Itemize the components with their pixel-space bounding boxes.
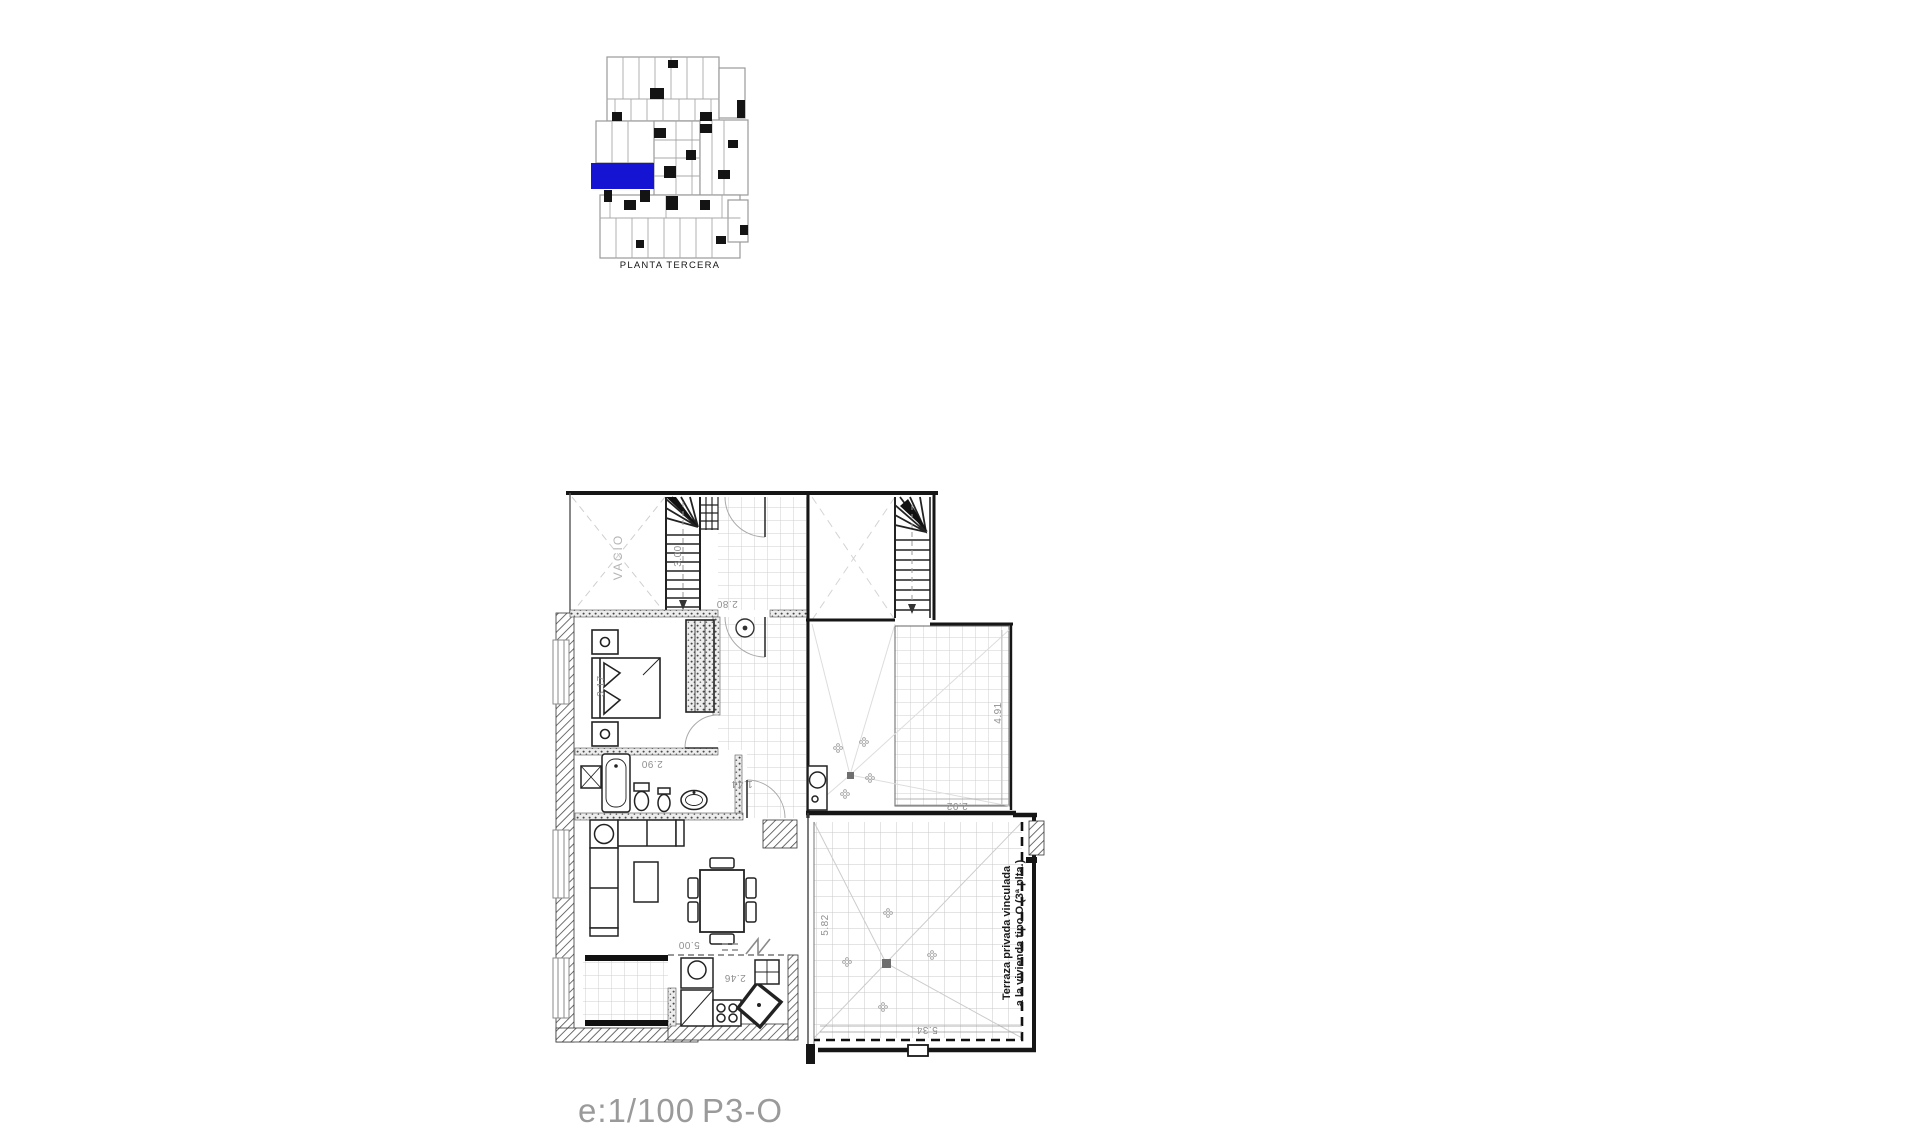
floorplan-page: PLANTA TERCERA VACIO [0,0,1920,1140]
dining-table [688,858,756,944]
scale-label: e:1/100 [578,1092,695,1129]
ramp-hatch [1029,821,1044,855]
terrace-section: 4.91 2.92 [806,493,1044,1064]
washbasin [681,791,707,810]
hall-lamp-icon [736,619,754,637]
dim-living: 5.00 [678,939,699,950]
landing-floor [718,497,808,610]
stair-direction-arrow [908,604,916,614]
wardrobe [686,620,714,712]
dim-terrace-depth: 5.82 [820,914,831,935]
footer-labels: e:1/100 P3-O [578,1092,783,1129]
overview-site-plan: PLANTA TERCERA [591,57,748,271]
wall-stub [806,1044,815,1064]
small-terrace-floor [583,961,668,1020]
stair-direction-arrow [679,600,687,610]
bedside-lamp-icon [601,730,610,739]
dim-bedroom: 3.17 [596,675,607,696]
kitchen [681,958,781,1027]
coffee-table [634,862,658,902]
drain-point [882,959,891,968]
drain-point [847,772,854,779]
fridge [755,960,779,984]
hall-floor [718,617,808,750]
toilet [634,783,649,811]
dim-upper-terrace-width: 2.92 [946,800,967,811]
bedroom-door [685,715,718,748]
terrace-note-line1: Terraza privada vinculada [1001,865,1013,1000]
dim-bathroom: 2.90 [641,758,662,769]
bedroom [592,620,714,746]
private-terrace: 5.82 5.34 Terraza privada vinculada a la… [806,813,1044,1064]
void-label: VACIO [611,534,625,580]
dim-kitchen: 2.46 [724,972,745,983]
apartment-unit: VACIO 3.00 2.80 [553,493,808,1042]
upper-terrace-floor [895,626,1009,806]
bedside-lamp-icon [601,638,610,647]
corner-counter [738,983,781,1027]
overview-highlighted-unit [591,163,654,189]
overview-plan-label: PLANTA TERCERA [620,260,720,271]
dim-terrace-width: 5.34 [916,1024,937,1035]
plan-code-label: P3-O [702,1092,783,1129]
bidet [658,788,670,812]
corridor-floor [747,750,808,818]
wall-notch [908,1045,928,1056]
dim-landing: 2.80 [716,598,737,609]
floorplan-drawing: PLANTA TERCERA VACIO [0,0,1920,1140]
stove [713,1000,741,1026]
terrace-note-line2: a la vivienda tipo O (3ª plta.) [1014,859,1026,1006]
upper-staircase [895,497,930,618]
dim-upper-terrace-depth: 4.91 [993,702,1004,723]
living-room [590,820,756,944]
upper-void [812,497,895,620]
water-heater [808,766,827,810]
dim-stair: 3.00 [673,545,684,566]
